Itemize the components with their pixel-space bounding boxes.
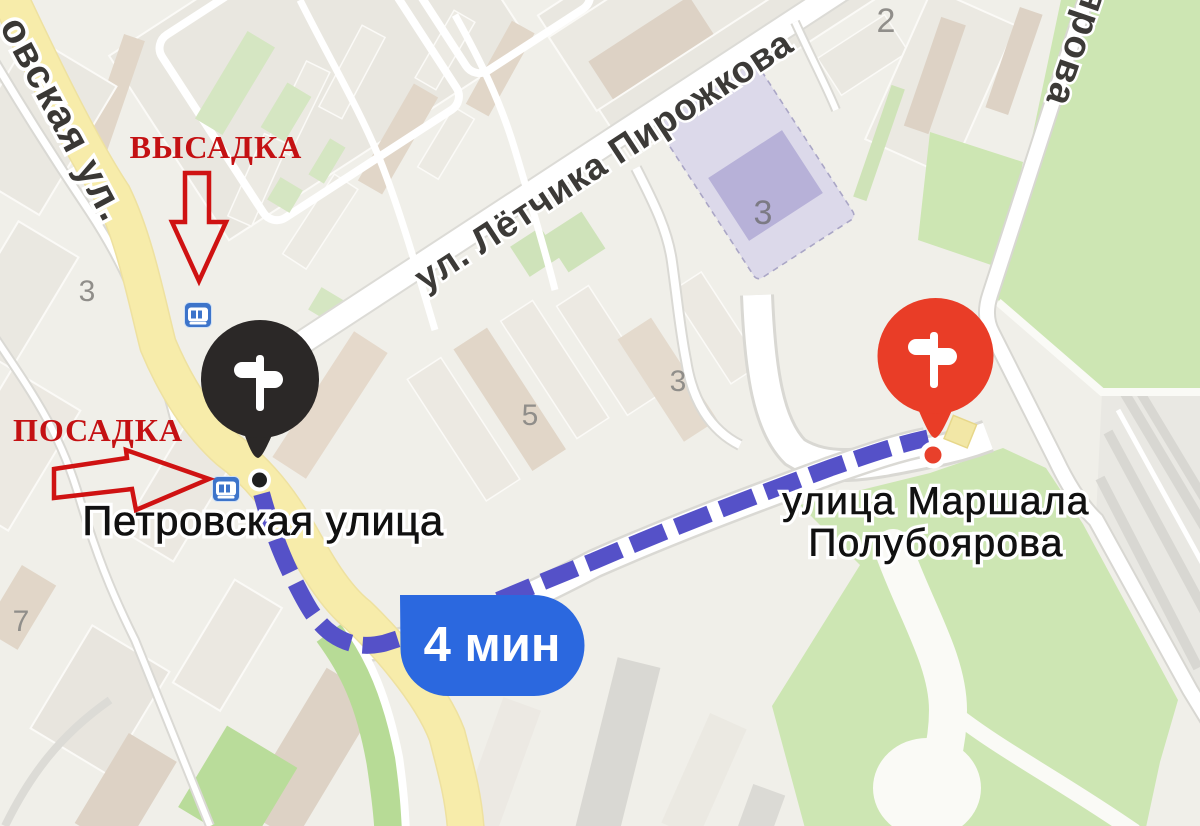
svg-text:улица Маршала: улица Маршала bbox=[782, 480, 1089, 523]
svg-text:3: 3 bbox=[79, 275, 96, 308]
svg-text:4 мин: 4 мин bbox=[424, 618, 561, 672]
svg-text:2: 2 bbox=[877, 2, 896, 40]
svg-text:ВЫСАДКА: ВЫСАДКА bbox=[130, 129, 303, 165]
svg-text:3: 3 bbox=[754, 194, 773, 232]
svg-text:ПОСАДКА: ПОСАДКА bbox=[13, 412, 183, 448]
svg-text:5: 5 bbox=[522, 399, 539, 432]
svg-text:7: 7 bbox=[13, 605, 30, 638]
svg-text:Полубоярова: Полубоярова bbox=[808, 522, 1063, 565]
svg-text:3: 3 bbox=[670, 365, 687, 398]
